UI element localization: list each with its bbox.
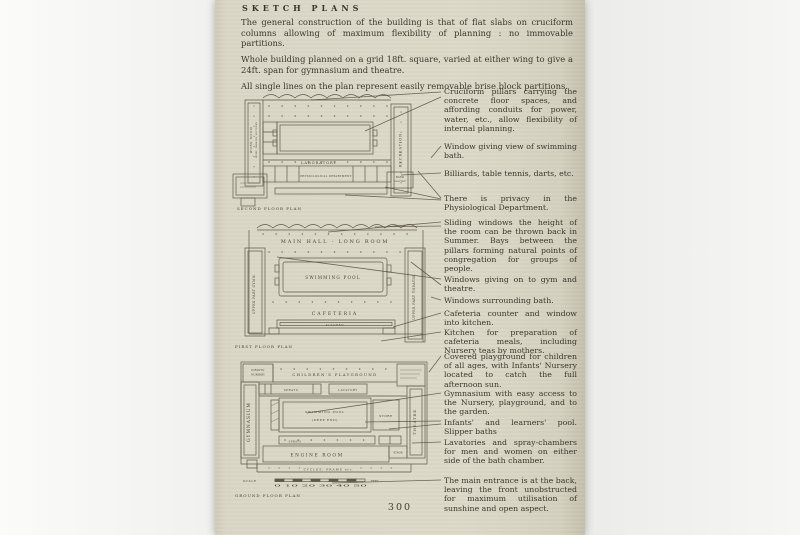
label-scale-feet: FEET <box>371 479 379 483</box>
plan3-waiting-illegible-label <box>400 370 422 378</box>
caption-first-floor-plan: FIRST FLOOR PLAN <box>235 344 293 349</box>
label-engine-room: ENGINE ROOM <box>290 454 343 459</box>
label-kitchen: KITCHEN <box>326 323 345 327</box>
note-window-swimming: Window giving view of swimming bath. <box>444 142 577 160</box>
note-cruciform-pillars: Cruciform pillars carrying the concrete … <box>444 87 577 133</box>
label-band: BAND <box>396 175 404 179</box>
second-floor-plan: WORK ROOM MUSIC, DEBATES, LECTURES RECRE… <box>231 88 443 213</box>
label-sprays-top: SPRAYS <box>284 388 299 392</box>
note-billiards: Billiards, table tennis, darts, etc. <box>444 169 577 178</box>
label-cycles-prams: CYCLES, PRAMS etc. <box>304 468 355 472</box>
plan1-roof-bays <box>263 95 391 99</box>
label-physiological-department: PHYSIOLOGICAL DEPARTMENT <box>300 175 352 178</box>
label-sprays-bottom: SPRAYS <box>289 441 302 444</box>
label-theatre: THEATRE <box>412 409 417 435</box>
label-laboratory: LABORATORY <box>301 161 337 165</box>
label-music-debates-lectures: MUSIC, DEBATES, LECTURES <box>256 121 258 158</box>
label-recreation: RECREATION <box>399 133 403 167</box>
note-sliding-windows: Sliding windows the height of the room c… <box>444 218 577 273</box>
label-infants: INFANTS' <box>251 368 265 372</box>
label-cafeteria: CAFETERIA <box>312 311 358 317</box>
label-nursery: NURSERY <box>251 373 265 377</box>
ground-floor-plan: INFANTS' NURSERY CHILDREN'S PLAYGROUND G… <box>229 356 445 501</box>
label-upper-part-gym: UPPER PART GYMN. <box>252 274 256 314</box>
label-swimming-pool-ground: SWIMMING POOL <box>305 410 345 414</box>
page-title: SKETCH PLANS <box>242 3 362 13</box>
note-windows-bath: Windows surrounding bath. <box>444 296 577 305</box>
label-scale-numbers: 0 10 20 30 40 50 <box>274 485 369 488</box>
label-band-practice: PRACTICE <box>394 180 406 183</box>
caption-ground-floor-plan: GROUND FLOOR PLAN <box>235 493 301 498</box>
note-cafeteria-counter: Cafeteria counter and window into kitche… <box>444 309 577 327</box>
note-gymnasium-access: Gymnasium with easy access to the Nurser… <box>444 389 577 417</box>
label-deep-end: (DEEP END) <box>312 418 338 422</box>
label-gymnasium: GYMNASIUM <box>247 402 252 442</box>
label-swimming-pool: SWIMMING POOL <box>305 275 360 280</box>
note-covered-playground: Covered playground for children of all a… <box>444 352 577 389</box>
label-scale: SCALE <box>243 479 257 483</box>
annotation-column: Cruciform pillars carrying the concrete … <box>444 0 577 535</box>
label-childrens-playground: CHILDREN'S PLAYGROUND <box>292 372 377 377</box>
label-main-hall-long-room: MAIN HALL - LONG ROOM <box>281 239 389 245</box>
book-page: SKETCH PLANS The general construction of… <box>215 0 585 535</box>
plan2-roof-bays <box>257 225 417 229</box>
label-upper-part-theatre: UPPER PART THEATRE <box>412 274 416 320</box>
plan1-annex-illegible-label <box>240 183 260 187</box>
label-store: STORE <box>379 414 392 418</box>
note-lavatories: Lavatories and spray-chambers for men an… <box>444 438 577 466</box>
page-number: 300 <box>215 502 585 513</box>
note-windows-gym: Windows giving on to gym and theatre. <box>444 275 577 293</box>
note-infants-pool: Infants' and learners' pool. Slipper bat… <box>444 418 577 436</box>
label-lavatory: LAVATORY <box>338 388 357 392</box>
note-privacy: There is privacy in the Physiological De… <box>444 194 577 212</box>
first-floor-plan: MAIN HALL - LONG ROOM UPPER PART GYMN. U… <box>233 218 440 351</box>
label-work-room: WORK ROOM <box>249 127 253 154</box>
caption-second-floor-plan: SECOND FLOOR PLAN <box>237 206 302 211</box>
label-stage: STAGE <box>393 451 402 455</box>
